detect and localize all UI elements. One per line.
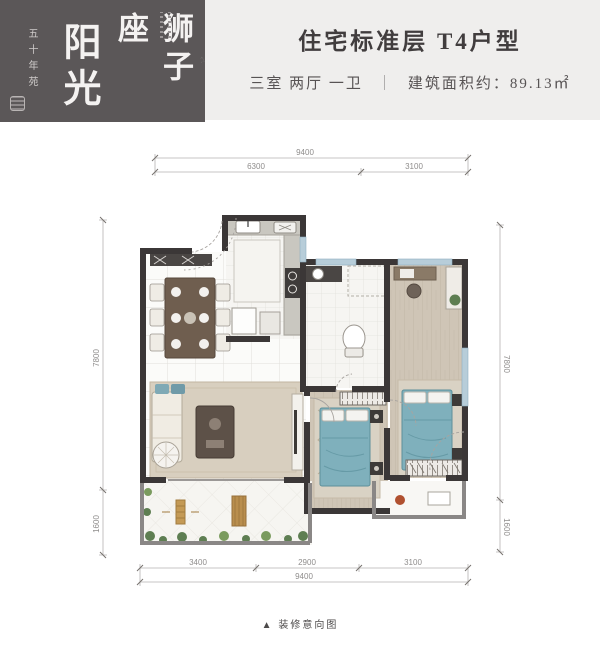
dim-bottom-seg1: 3400 <box>189 558 207 567</box>
dim-right-seg1: 7800 <box>502 355 511 373</box>
toilet <box>343 325 365 351</box>
tv-cabinet <box>292 394 303 470</box>
leo-constellation-icon <box>200 8 205 112</box>
kitchen-worktop <box>234 240 280 302</box>
coffee-table <box>196 406 234 458</box>
small-balcony-ball <box>395 495 405 505</box>
dim-bottom-total: 9400 <box>295 572 313 581</box>
layout-text: 三室 两厅 一卫 <box>249 72 363 93</box>
living-area <box>150 382 303 478</box>
kitchen-appliance <box>260 312 280 334</box>
brand-name-sub: 狮子座 <box>108 12 198 122</box>
dim-top-seg2: 3100 <box>405 162 423 171</box>
area-text: 建筑面积约：89.13㎡ <box>408 72 571 93</box>
bedroom2-side-window <box>462 348 468 406</box>
subtitle-divider: ｜ <box>377 72 394 93</box>
bedroom1-pillow <box>346 410 368 421</box>
sofa-pillow <box>171 384 185 394</box>
dim-left-seg1: 7800 <box>92 349 101 367</box>
bedroom2-pillow <box>428 392 450 403</box>
bathroom-floor <box>304 264 388 388</box>
small-balcony-stool <box>428 492 450 505</box>
plan-caption: ▲ 装修意向图 <box>262 618 339 631</box>
kitchen-window <box>300 237 306 262</box>
brand-logo-block: 五十年苑 阳光 狮子座 <box>0 0 205 122</box>
bedroom2-window <box>398 259 452 265</box>
floorplan-svg: 9400 6300 3100 3400 2900 3100 9400 7800 … <box>0 140 600 669</box>
dim-top-total: 9400 <box>296 148 314 157</box>
brand-fine-print <box>160 12 171 38</box>
floorplan-poster: 五十年苑 阳光 狮子座 住宅标准层 T4户型 三室 两厅 一卫 ｜ <box>0 0 600 669</box>
bath-window <box>316 259 356 265</box>
brand-side-column: 五十年苑 <box>10 14 43 111</box>
bedroom2-pillow <box>404 392 426 403</box>
bedroom2-wardrobe <box>406 460 462 476</box>
brand-name-main: 阳光 <box>51 22 106 114</box>
fridge <box>232 308 256 334</box>
sofa-pillow <box>155 384 169 394</box>
page-subtitle: 三室 两厅 一卫 ｜ 建筑面积约：89.13㎡ <box>230 72 590 93</box>
dim-left-seg2: 1600 <box>92 515 101 533</box>
dim-bottom-seg2: 2900 <box>298 558 316 567</box>
dim-right-seg2: 1600 <box>502 518 511 536</box>
laptop <box>400 269 414 278</box>
floorplan-drawing: 9400 6300 3100 3400 2900 3100 9400 7800 … <box>0 140 600 669</box>
desk-chair <box>407 284 421 298</box>
bedroom1-wardrobe <box>340 392 386 405</box>
brand-side-note: 五十年苑 <box>24 28 39 92</box>
brand-seal-icon <box>10 96 25 111</box>
plant <box>450 295 461 306</box>
tv <box>294 410 297 454</box>
dim-top-seg1: 6300 <box>247 162 265 171</box>
dim-bottom-seg3: 3100 <box>404 558 422 567</box>
page-title: 住宅标准层 T4户型 <box>230 22 590 56</box>
title-block: 住宅标准层 T4户型 三室 两厅 一卫 ｜ 建筑面积约：89.13㎡ <box>230 22 590 93</box>
